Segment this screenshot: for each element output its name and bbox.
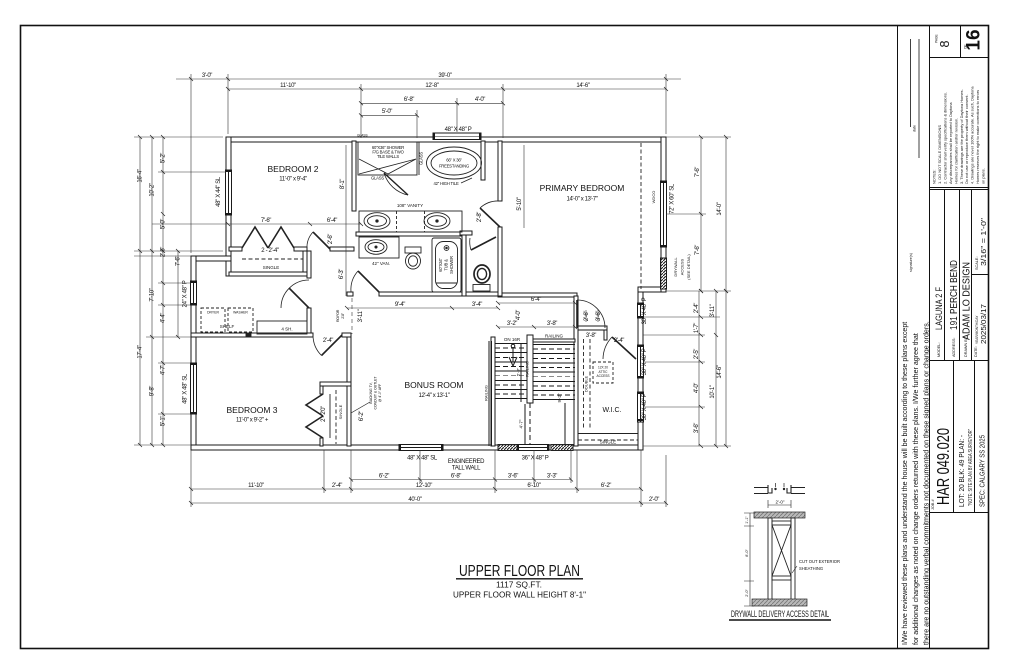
svg-text:ENGINEERED: ENGINEERED — [448, 459, 485, 465]
svg-text:3'-4": 3'-4" — [472, 302, 482, 308]
svg-text:date: date — [913, 125, 917, 132]
svg-text:FREESTANDING: FREESTANDING — [439, 164, 469, 169]
svg-text:RAILING: RAILING — [484, 385, 489, 401]
svg-text:Any discrepancies shall be rep: Any discrepancies shall be reported to D… — [948, 102, 953, 184]
svg-text:2'-4": 2'-4" — [323, 338, 333, 344]
svg-text:PRIMARY BEDROOM: PRIMARY BEDROOM — [540, 183, 625, 193]
svg-text:SINGLE: SINGLE — [338, 404, 343, 419]
svg-text:11'-10": 11'-10" — [280, 83, 296, 89]
svg-text:on plans.: on plans. — [981, 168, 986, 184]
svg-text:W.I.C.: W.I.C. — [602, 407, 621, 414]
svg-text:4'-0": 4'-0" — [475, 97, 485, 103]
svg-text:5'-10": 5'-10" — [517, 197, 523, 210]
svg-text:4. Drawings are never 100% acc: 4. Drawings are never 100% accurate. As … — [970, 86, 975, 184]
svg-text:60"X34": 60"X34" — [438, 257, 443, 271]
svg-text:7'-10": 7'-10" — [150, 288, 156, 301]
svg-text:DRYER: DRYER — [207, 311, 219, 315]
svg-text:Homes reserves the right to ma: Homes reserves the right to make correct… — [975, 90, 980, 184]
svg-text:7'-6": 7'-6" — [695, 167, 701, 177]
svg-text:2'-5": 2'-5" — [694, 349, 700, 359]
svg-text:1. DO NOT SCALE DIMENSIONS: 1. DO NOT SCALE DIMENSIONS — [937, 125, 942, 184]
svg-text:SHOWER: SHOWER — [449, 256, 454, 274]
svg-text:2 - 2'0": 2 - 2'0" — [321, 406, 327, 422]
svg-text:6'-4": 6'-4" — [531, 297, 541, 303]
svg-text:Homes for clarification and/or: Homes for clarification and/or revision. — [953, 118, 958, 184]
svg-text:3. These drawings are the prop: 3. These drawings are the property of Da… — [959, 89, 964, 184]
svg-text:6'-2": 6'-2" — [359, 411, 365, 421]
svg-text:40'-0": 40'-0" — [408, 497, 421, 503]
svg-text:2'-8": 2'-8" — [477, 212, 483, 222]
svg-text:5'-1": 5'-1" — [161, 416, 167, 426]
svg-text:BEDROOM 2: BEDROOM 2 — [267, 164, 318, 174]
svg-text:4'-0": 4'-0" — [516, 310, 522, 320]
svg-text:48" X 48" SL: 48" X 48" SL — [183, 373, 189, 404]
svg-text:2'-4": 2'-4" — [614, 338, 624, 344]
svg-text:36" X 48" P: 36" X 48" P — [522, 456, 549, 462]
svg-text:12'-4" x 13'-1": 12'-4" x 13'-1" — [419, 393, 450, 399]
svg-text:6'-2": 6'-2" — [379, 474, 389, 480]
svg-text:14'-0" x 13'-7": 14'-0" x 13'-7" — [567, 197, 598, 203]
svg-text:8'-1": 8'-1" — [340, 179, 346, 189]
svg-text:11'-0" x 9'-2" +: 11'-0" x 9'-2" + — [236, 418, 269, 424]
svg-text:4'-0": 4'-0" — [694, 383, 700, 393]
svg-text:ADDRESS:: ADDRESS: — [952, 338, 956, 357]
svg-text:3'-6": 3'-6" — [596, 311, 602, 321]
svg-text:RAILING: RAILING — [545, 334, 564, 339]
svg-text:9'-8": 9'-8" — [150, 386, 156, 396]
svg-text:2'-6": 2'-6" — [161, 247, 167, 257]
svg-text:HAR 049.020: HAR 049.020 — [933, 428, 953, 505]
svg-text:6'-2": 6'-2" — [601, 483, 611, 489]
svg-text:there are no outstanding verba: there are no outstanding verbal commitme… — [923, 321, 931, 645]
svg-text:66" X 36": 66" X 36" — [446, 158, 462, 163]
svg-text:3'-6": 3'-6" — [694, 423, 700, 433]
svg-text:14'-0": 14'-0" — [717, 202, 723, 215]
svg-text:BONUS ROOM: BONUS ROOM — [404, 380, 463, 390]
svg-text:DRYWALL DELIVERY ACCESS DETAIL: DRYWALL DELIVERY ACCESS DETAIL — [731, 609, 829, 619]
svg-text:30" X 40" P: 30" X 40" P — [642, 393, 648, 420]
svg-text:3'-8": 3'-8" — [586, 333, 596, 339]
svg-text:SINGLE: SINGLE — [263, 265, 280, 270]
svg-text:3'-6": 3'-6" — [508, 474, 518, 480]
svg-text:42" HIGH TILE: 42" HIGH TILE — [433, 181, 459, 186]
svg-text:BACKING TV,: BACKING TV, — [369, 382, 373, 403]
svg-text:4'-4": 4'-4" — [161, 313, 167, 323]
svg-text:48" X 44" SL: 48" X 44" SL — [216, 176, 222, 207]
svg-text:5'-8": 5'-8" — [516, 367, 521, 376]
svg-text:ADAM LO DESIGN: ADAM LO DESIGN — [962, 262, 973, 340]
svg-text:NOTES:: NOTES: — [932, 170, 937, 184]
svg-text:Do not use or reproduce them w: Do not use or reproduce them without the… — [964, 94, 969, 184]
svg-text:5'-0": 5'-0" — [161, 219, 167, 229]
svg-text:2 - 2'-4": 2 - 2'-4" — [261, 248, 279, 254]
svg-text:191 PERCH BEND: 191 PERCH BEND — [949, 260, 960, 330]
svg-text:8'-0": 8'-0" — [745, 549, 749, 557]
svg-text:@ 4'-0" AFF: @ 4'-0" AFF — [378, 384, 382, 402]
svg-text:2. Contractor shall verify spe: 2. Contractor shall verify specification… — [942, 92, 947, 184]
svg-text:CONDUIT & OUTLET: CONDUIT & OUTLET — [374, 377, 378, 410]
svg-text:2'-0": 2'-0" — [776, 500, 785, 505]
svg-text:I/We have reviewed these plans: I/We have reviewed these plans and under… — [901, 322, 909, 645]
svg-text:7'-6": 7'-6" — [261, 218, 271, 224]
svg-text:WASHER: WASHER — [233, 311, 248, 315]
svg-text:TUB &: TUB & — [444, 259, 449, 271]
svg-text:signature(s): signature(s) — [909, 253, 913, 272]
svg-text:2'-4": 2'-4" — [332, 483, 342, 489]
svg-text:6'-8": 6'-8" — [404, 97, 414, 103]
svg-text:UPPER FLOOR PLAN: UPPER FLOOR PLAN — [459, 563, 580, 580]
svg-text:39'-0": 39'-0" — [438, 73, 451, 79]
svg-text:DATE:: DATE: — [974, 346, 978, 357]
svg-text:1117 SQ.FT.: 1117 SQ.FT. — [496, 581, 542, 590]
svg-text:3'-8": 3'-8" — [547, 321, 557, 327]
svg-text:12'-8": 12'-8" — [425, 83, 438, 89]
svg-text:SPEC: CALGARY SS 2025: SPEC: CALGARY SS 2025 — [978, 435, 987, 507]
svg-text:"NOTE: SITE PLAN BY AREA SURVE: "NOTE: SITE PLAN BY AREA SURVEYOR" — [968, 429, 974, 506]
svg-text:9'-4": 9'-4" — [395, 302, 405, 308]
svg-text:ON 16R: ON 16R — [504, 337, 521, 342]
svg-text:for additional changes as note: for additional changes as noted on chang… — [912, 333, 920, 645]
svg-text:ACCESS: ACCESS — [680, 258, 685, 275]
svg-text:6'-10": 6'-10" — [527, 483, 540, 489]
svg-text:5'-2": 5'-2" — [161, 153, 167, 163]
svg-text:3/16" = 1'-0": 3/16" = 1'-0" — [979, 218, 988, 266]
svg-text:DRYWALL: DRYWALL — [673, 257, 678, 277]
svg-text:48" X 48" P: 48" X 48" P — [445, 127, 472, 133]
svg-text:3'-11": 3'-11" — [710, 304, 716, 317]
svg-text:4 SH.: 4 SH. — [281, 327, 292, 332]
svg-text:24" X 48" P: 24" X 48" P — [183, 280, 189, 307]
svg-text:SINGLE: SINGLE — [600, 440, 617, 445]
svg-text:11'-0" x 9'-4": 11'-0" x 9'-4" — [279, 177, 307, 183]
svg-text:RAILING: RAILING — [525, 361, 530, 377]
svg-text:2'-6": 2'-6" — [328, 234, 334, 244]
svg-text:WDCO: WDCO — [651, 191, 656, 204]
svg-text:GLASS: GLASS — [371, 176, 384, 181]
svg-text:108" VANITY: 108" VANITY — [397, 203, 423, 208]
svg-text:16'-4": 16'-4" — [138, 169, 144, 182]
svg-text:TILE WALLS: TILE WALLS — [377, 154, 399, 159]
svg-text:2'-0": 2'-0" — [745, 589, 749, 597]
svg-text:1'-1": 1'-1" — [745, 516, 749, 524]
svg-text:14'-6": 14'-6" — [717, 365, 723, 378]
svg-text:17'-4": 17'-4" — [138, 345, 144, 358]
svg-text:2'-4": 2'-4" — [694, 303, 700, 313]
svg-text:3'-3": 3'-3" — [547, 474, 557, 480]
svg-text:10'-1": 10'-1" — [710, 385, 716, 398]
svg-text:42" VAN.: 42" VAN. — [372, 261, 390, 266]
svg-text:RO FOR: RO FOR — [336, 309, 340, 322]
svg-text:GLASS: GLASS — [357, 134, 368, 138]
svg-text:2'-0": 2'-0" — [649, 497, 659, 503]
svg-text:UPPER FLOOR WALL HEIGHT 8'-1": UPPER FLOOR WALL HEIGHT 8'-1" — [453, 590, 586, 600]
svg-text:4'-7": 4'-7" — [519, 419, 524, 428]
svg-text:7'-6": 7'-6" — [695, 245, 701, 255]
svg-text:LOT: 20 BLK: 49 PLAN: -: LOT: 20 BLK: 49 PLAN: - — [959, 434, 966, 507]
svg-text:6'-8": 6'-8" — [451, 474, 461, 480]
svg-text:SHEATHING: SHEATHING — [799, 566, 823, 571]
svg-text:10'-2": 10'-2" — [150, 183, 156, 196]
svg-text:SHELF: SHELF — [220, 324, 235, 329]
svg-text:30" X 40" P: 30" X 40" P — [642, 348, 648, 375]
svg-text:11'-10": 11'-10" — [248, 483, 264, 489]
svg-text:1'-7": 1'-7" — [694, 323, 700, 333]
svg-text:TALL WALL: TALL WALL — [452, 466, 481, 472]
svg-text:GLASS: GLASS — [419, 152, 424, 165]
svg-text:30" X 40" P: 30" X 40" P — [642, 297, 648, 324]
svg-text:7'-6": 7'-6" — [176, 256, 182, 266]
svg-text:ACCESS: ACCESS — [596, 374, 609, 378]
svg-text:(SEE DETAIL): (SEE DETAIL) — [686, 254, 691, 280]
svg-text:6'-3": 6'-3" — [339, 269, 345, 279]
svg-text:3'-2": 3'-2" — [507, 321, 517, 327]
svg-text:DOUBLE: DOUBLE — [584, 375, 589, 392]
svg-text:9'-2": 9'-2" — [557, 393, 562, 402]
svg-text:CUT OUT EXTERIOR: CUT OUT EXTERIOR — [799, 559, 840, 564]
svg-text:MODEL:: MODEL: — [937, 342, 941, 357]
svg-text:LAGUNA 2 F: LAGUNA 2 F — [934, 287, 944, 330]
svg-text:3'-11": 3'-11" — [358, 309, 364, 322]
svg-text:3'-0": 3'-0" — [202, 73, 212, 79]
svg-text:2025/03/17: 2025/03/17 — [979, 304, 988, 344]
svg-text:48" X 48" SL: 48" X 48" SL — [407, 456, 438, 462]
svg-text:4'-7": 4'-7" — [161, 365, 167, 375]
svg-text:16: 16 — [964, 29, 985, 50]
svg-text:72" X 60" SL: 72" X 60" SL — [670, 183, 676, 214]
svg-text:6'-4": 6'-4" — [327, 218, 337, 224]
svg-text:2'-6": 2'-6" — [584, 311, 590, 321]
svg-text:8: 8 — [938, 40, 952, 47]
svg-text:12'-10": 12'-10" — [416, 483, 432, 489]
svg-text:5'-0": 5'-0" — [382, 109, 392, 115]
svg-text:BEDROOM 3: BEDROOM 3 — [226, 405, 277, 415]
svg-text:14'-6": 14'-6" — [576, 83, 589, 89]
